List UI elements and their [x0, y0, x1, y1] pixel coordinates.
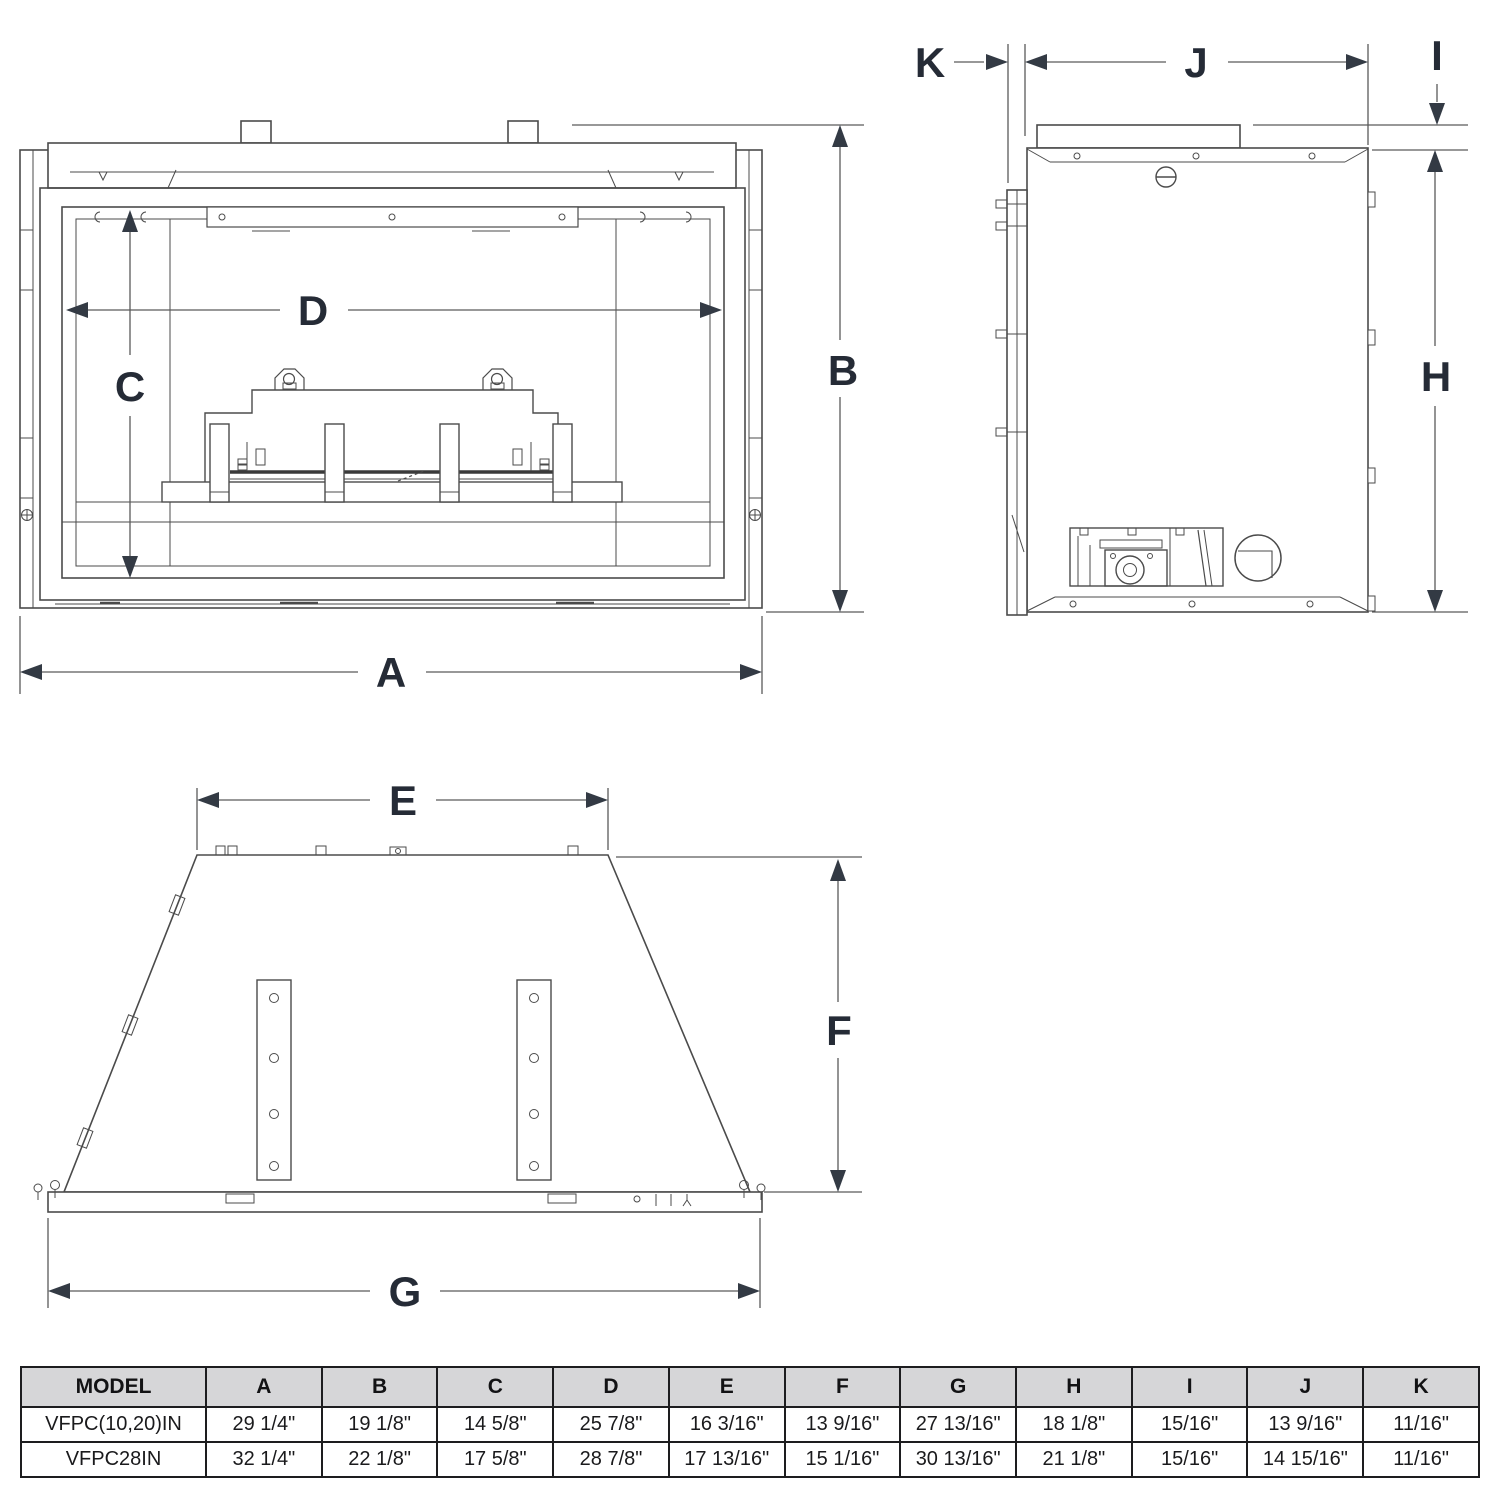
top-shell [64, 855, 750, 1192]
cell-value: 32 1/4" [206, 1442, 322, 1477]
front-side-slot [20, 230, 33, 290]
spec-table-header-row: MODEL A B C D E F G H I J K [21, 1367, 1479, 1407]
side-view [996, 125, 1375, 615]
dim-K [954, 54, 1008, 70]
front-baffle [207, 207, 578, 227]
cell-value: 21 1/8" [1016, 1442, 1132, 1477]
front-opening-inner [76, 219, 710, 566]
cell-value: 28 7/8" [553, 1442, 669, 1477]
cell-value: 11/16" [1363, 1442, 1479, 1477]
spec-table: MODEL A B C D E F G H I J K VFPC(10,20)I… [20, 1366, 1480, 1478]
col-header-j: J [1247, 1367, 1363, 1407]
col-header-h: H [1016, 1367, 1132, 1407]
log-post [210, 424, 229, 502]
col-header-i: I [1132, 1367, 1248, 1407]
col-header-a: A [206, 1367, 322, 1407]
front-hood [48, 143, 736, 188]
side-latch [1368, 330, 1375, 345]
col-header-b: B [322, 1367, 438, 1407]
cell-value: 18 1/8" [1016, 1407, 1132, 1442]
dim-label-d: D [298, 287, 328, 334]
col-header-k: K [1363, 1367, 1479, 1407]
cell-value: 22 1/8" [322, 1442, 438, 1477]
col-header-f: F [785, 1367, 901, 1407]
dimensional-drawing-page: B A C D [0, 0, 1500, 1500]
table-row-vfpc28in: VFPC28IN 32 1/4" 22 1/8" 17 5/8" 28 7/8"… [21, 1442, 1479, 1477]
dim-D [66, 302, 722, 318]
dim-label-a: A [376, 649, 406, 696]
col-header-g: G [900, 1367, 1016, 1407]
log-post [440, 424, 459, 502]
col-header-d: D [553, 1367, 669, 1407]
dim-label-h: H [1421, 353, 1451, 400]
dim-I [1429, 84, 1445, 125]
log-post [553, 424, 572, 502]
dim-label-g: G [389, 1268, 422, 1315]
cell-value: 14 5/8" [437, 1407, 553, 1442]
log-post [325, 424, 344, 502]
cell-model: VFPC(10,20)IN [21, 1407, 206, 1442]
front-screw [750, 510, 761, 521]
col-header-e: E [669, 1367, 785, 1407]
cell-value: 17 5/8" [437, 1442, 553, 1477]
front-screw [22, 510, 33, 521]
side-latch [1368, 596, 1375, 611]
drawing-canvas: B A C D [0, 0, 1500, 1500]
side-latch [1368, 192, 1375, 207]
front-side-slot [20, 438, 33, 498]
dim-label-b: B [828, 347, 858, 394]
cell-value: 13 9/16" [785, 1407, 901, 1442]
front-top-tab [508, 121, 538, 143]
cell-value: 19 1/8" [322, 1407, 438, 1442]
table-row-vfpc1020in: VFPC(10,20)IN 29 1/4" 19 1/8" 14 5/8" 25… [21, 1407, 1479, 1442]
cell-value: 11/16" [1363, 1407, 1479, 1442]
cell-value: 13 9/16" [1247, 1407, 1363, 1442]
front-top-tab [241, 121, 271, 143]
dim-label-i: I [1431, 32, 1443, 79]
front-face-frame [40, 188, 745, 600]
cell-value: 27 13/16" [900, 1407, 1016, 1442]
top-flange [48, 1192, 762, 1212]
dim-label-k: K [915, 39, 945, 86]
cell-value: 15/16" [1132, 1442, 1248, 1477]
cell-model: VFPC28IN [21, 1442, 206, 1477]
cell-value: 15 1/16" [785, 1442, 901, 1477]
front-side-slot [749, 438, 762, 498]
cell-value: 15/16" [1132, 1407, 1248, 1442]
burner-assembly [162, 369, 622, 502]
cell-value: 16 3/16" [669, 1407, 785, 1442]
dim-label-e: E [389, 777, 417, 824]
cell-value: 17 13/16" [669, 1442, 785, 1477]
cell-value: 25 7/8" [553, 1407, 669, 1442]
cell-value: 29 1/4" [206, 1407, 322, 1442]
top-view [34, 846, 765, 1212]
dim-label-c: C [115, 363, 145, 410]
col-header-model: MODEL [21, 1367, 206, 1407]
side-top-plate [1037, 125, 1240, 148]
side-latch [1368, 468, 1375, 483]
dim-label-f: F [826, 1007, 852, 1054]
front-side-slot [749, 230, 762, 290]
dim-label-j: J [1184, 39, 1207, 86]
cell-value: 30 13/16" [900, 1442, 1016, 1477]
col-header-c: C [437, 1367, 553, 1407]
cell-value: 14 15/16" [1247, 1442, 1363, 1477]
